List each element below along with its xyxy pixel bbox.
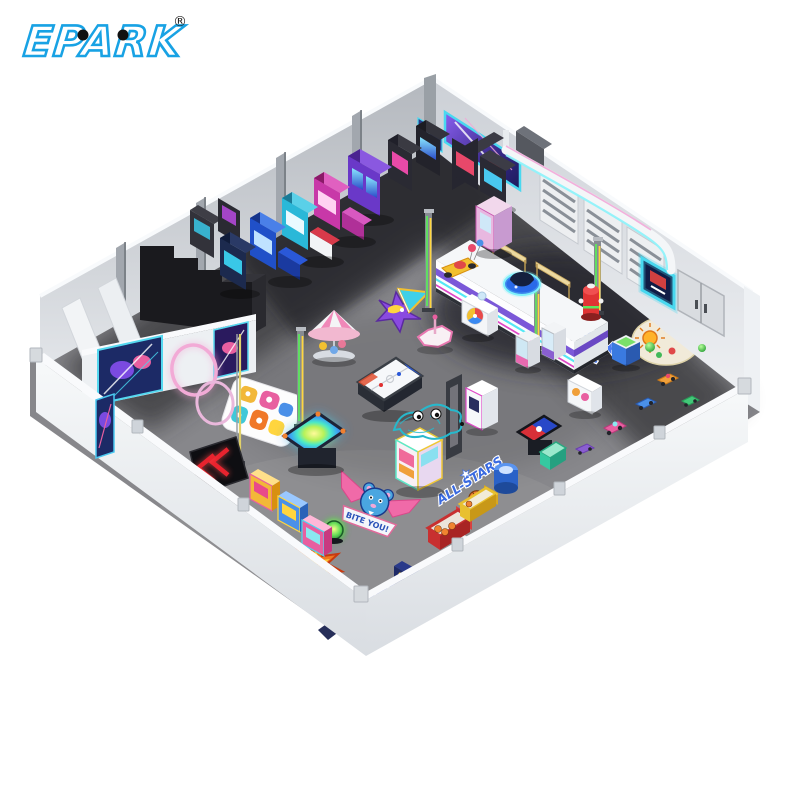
logo-text: EPARK (21, 17, 186, 66)
door-handle (695, 300, 698, 309)
registered-mark: ® (173, 14, 187, 30)
play-ball (698, 344, 706, 352)
scene: STAY COOL ALL-STARS BITE YOU! (0, 0, 800, 800)
kiddie-game-box (612, 335, 640, 372)
basketball-machine (494, 463, 518, 494)
claw-machine (542, 322, 566, 360)
logo-dot (118, 30, 129, 41)
door-handle (704, 304, 707, 313)
arcade-3d-render: STAY COOL ALL-STARS BITE YOU! (0, 0, 800, 800)
outer-wall-poster (96, 394, 114, 458)
play-ball (645, 342, 655, 352)
epark-logo: EPARK ® (10, 4, 230, 84)
dark-frame (446, 374, 462, 460)
logo-dot (78, 30, 89, 41)
bumper-car (504, 272, 540, 295)
